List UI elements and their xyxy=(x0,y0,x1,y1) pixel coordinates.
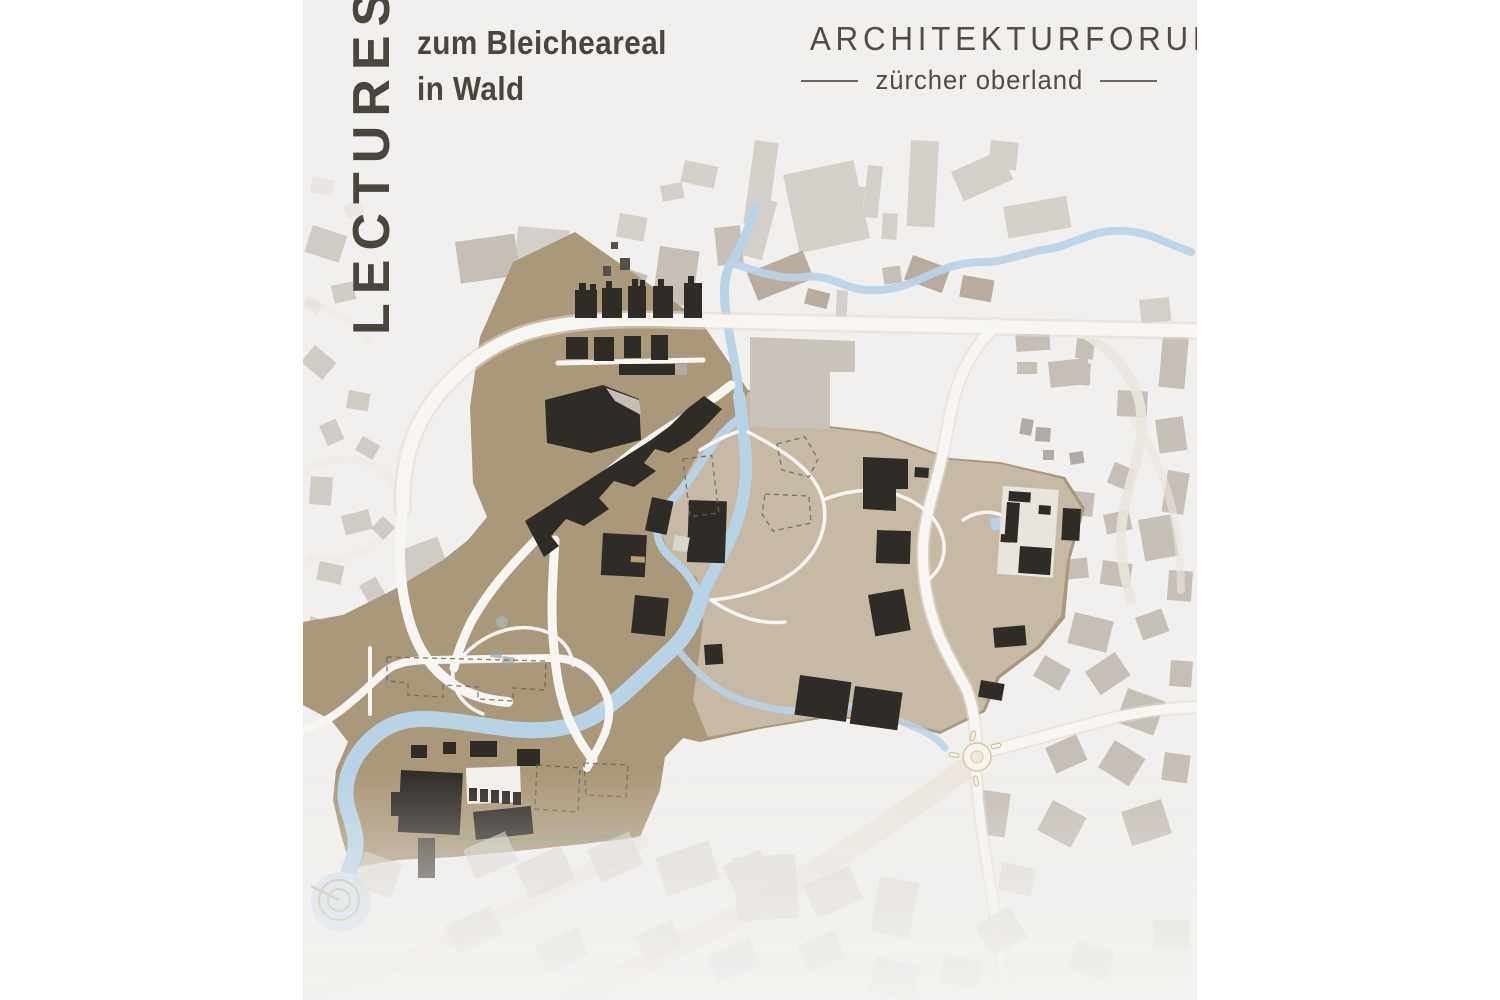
subtitle-line-2: in Wald xyxy=(417,66,667,112)
logo-subline-text: zürcher oberland xyxy=(875,65,1083,96)
page-background: LECTURES zum Bleicheareal in Wald ARCHIT… xyxy=(0,0,1500,1000)
bottom-fade-overlay xyxy=(303,770,1197,1000)
logo-rule-right xyxy=(1100,80,1157,82)
architekturforum-logo: ARCHITEKTURFORUM zürcher oberland xyxy=(801,20,1157,96)
platform-2 xyxy=(502,656,515,667)
logo-subline: zürcher oberland xyxy=(801,65,1157,96)
platform-1 xyxy=(490,648,503,659)
logo-wordmark: ARCHITEKTURFORUM xyxy=(810,20,1148,58)
logo-rule-left xyxy=(801,80,858,82)
cistern xyxy=(496,616,508,628)
poster-title-vertical: LECTURES xyxy=(340,0,404,335)
poster-subtitle: zum Bleicheareal in Wald xyxy=(417,20,667,111)
context-buildings-dark xyxy=(1019,418,1084,465)
poster: LECTURES zum Bleicheareal in Wald ARCHIT… xyxy=(303,0,1197,1000)
row-street xyxy=(558,360,703,363)
weberei-slab xyxy=(750,337,855,429)
subtitle-line-1: zum Bleicheareal xyxy=(417,20,667,66)
site-plan-map xyxy=(303,0,1197,1000)
